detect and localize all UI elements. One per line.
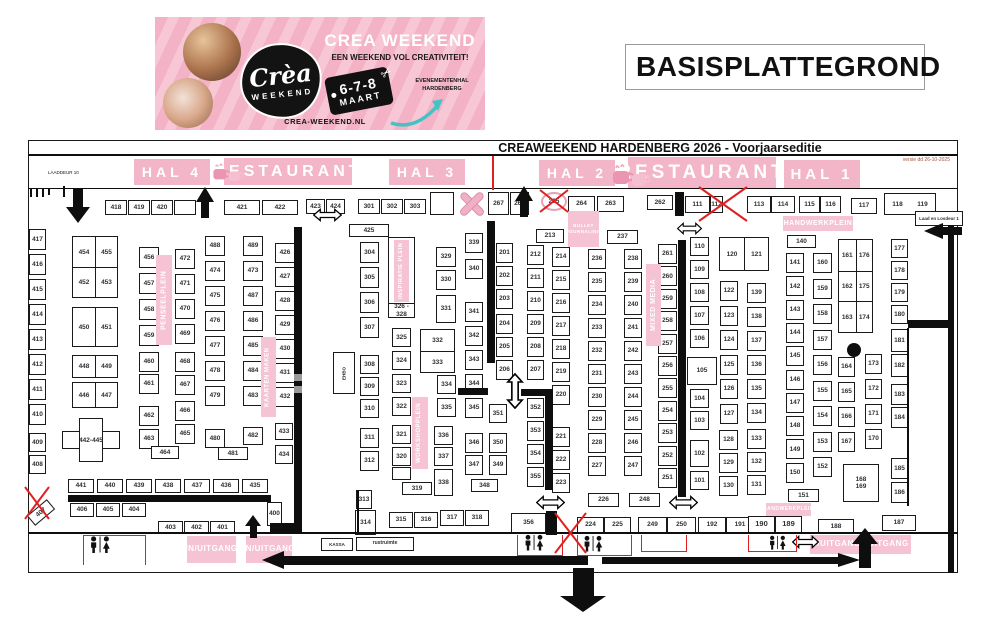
booth-149: 149 (786, 439, 804, 459)
booth-347: 347 (465, 455, 483, 475)
booth-451: 451 (95, 308, 117, 346)
booth-167: 167 (838, 432, 855, 452)
booth-205: 205 (496, 337, 513, 357)
booth-108: 108 (690, 283, 709, 302)
booth-475: 475 (205, 286, 225, 306)
booth-208: 208 (527, 337, 544, 357)
booth-338: 338 (434, 469, 453, 496)
hall-banner-restaurant: RESTAURANT (224, 158, 352, 185)
booth-203: 203 (496, 289, 513, 309)
area-label-mixed-media: MIXED MEDIA (646, 264, 661, 346)
booth-210: 210 (527, 291, 544, 311)
booth-413: 413 (29, 329, 46, 350)
hall-banner-hal-3: HAL 3 (389, 159, 465, 185)
booth-131: 131 (747, 475, 766, 495)
wall (487, 221, 495, 363)
wall (458, 388, 488, 395)
flow-arrow-down (66, 189, 90, 223)
booth-339: 339 (465, 233, 483, 253)
booth-154: 154 (813, 406, 832, 426)
booth-110: 110 (690, 237, 709, 256)
booth-478: 478 (205, 361, 225, 381)
booth-442-445: 442-445 (62, 418, 120, 462)
booth-321: 321 (392, 425, 411, 444)
booth-114: 114 (771, 196, 795, 213)
hall-banner-hal-4: HAL 4 (134, 159, 210, 185)
booth-102: 102 (690, 440, 709, 467)
wall (521, 389, 553, 396)
teal-arrow-icon (388, 95, 446, 127)
booth-164: 164 (838, 357, 855, 377)
booth-190: 190 (748, 516, 775, 533)
booth-482: 482 (243, 427, 263, 445)
coffee-cups-icon (610, 162, 650, 190)
booth-223: 223 (552, 473, 570, 493)
booth-322: 322 (392, 397, 411, 416)
booth-422: 422 (262, 200, 298, 215)
booth-489: 489 (243, 236, 263, 256)
booth-472: 472 (175, 249, 195, 269)
booth-142: 142 (786, 276, 804, 296)
booth-130: 130 (719, 476, 738, 496)
booth-241: 241 (624, 318, 642, 338)
booth-315: 315 (389, 512, 413, 528)
basisplattegrond-title-box: BASISPLATTEGROND (625, 44, 925, 90)
booth-150: 150 (786, 463, 804, 483)
booth-452: 452 (73, 267, 95, 297)
wall (294, 374, 302, 381)
booth-267: 267 (488, 192, 509, 215)
booth-185: 185 (891, 458, 908, 479)
booth-323: 323 (392, 374, 411, 393)
booth-175: 175 (856, 271, 873, 302)
basisplattegrond-page: Crèa WEEKEND CREA WEEKEND EEN WEEKEND VO… (0, 0, 988, 630)
wall (545, 396, 553, 490)
booth-121: 121 (744, 238, 768, 270)
entrance-marking (577, 535, 632, 556)
booth-231: 231 (588, 364, 606, 384)
booth-307: 307 (360, 317, 379, 338)
booth-317: 317 (440, 510, 464, 526)
booth-209: 209 (527, 314, 544, 334)
booth-126: 126 (720, 379, 738, 399)
booth-233: 233 (588, 318, 606, 338)
booth-468: 468 (175, 352, 195, 372)
booth-207: 207 (527, 360, 544, 380)
booth-337: 337 (434, 447, 453, 466)
double-arrow-icon (536, 495, 565, 510)
booth-133: 133 (747, 429, 766, 449)
booth-235: 235 (588, 272, 606, 292)
booth-217: 217 (552, 316, 570, 336)
booth-120: 120 (720, 238, 744, 270)
booth-104: 104 (690, 389, 709, 408)
wall (678, 240, 686, 497)
booth-263: 263 (597, 196, 624, 212)
hall-banner-hal-1: HAL 1 (784, 160, 860, 189)
booth-421: 421 (224, 200, 260, 215)
booth-249: 249 (638, 517, 667, 533)
flow-arrow-down (560, 568, 607, 612)
booth-405: 405 (96, 503, 120, 517)
double-arrow-icon (669, 495, 698, 510)
closed-booth-x (455, 192, 486, 215)
booth-480: 480 (205, 429, 225, 448)
booth-485: 485 (243, 336, 263, 356)
booth-125: 125 (720, 355, 738, 375)
booth-342: 342 (465, 326, 483, 346)
area-label-bullet: BULLET JOURNALING (568, 211, 599, 247)
booth-346: 346 (465, 433, 483, 453)
booth-220: 220 (552, 385, 570, 405)
booth-487: 487 (243, 286, 263, 306)
booth-block: 332333 (420, 329, 455, 373)
area-label-in-uitgang: IN/UITGANG (187, 536, 236, 563)
booth-134: 134 (747, 403, 766, 423)
booth-127: 127 (720, 404, 738, 424)
booth (430, 192, 454, 215)
booth-123: 123 (720, 306, 738, 326)
booth-222: 222 (552, 450, 570, 470)
area-label-penseelplein: PENSEELPLEIN (156, 255, 172, 345)
booth-214: 214 (552, 247, 570, 267)
booth-436: 436 (213, 479, 239, 493)
red-x-mark (24, 486, 50, 520)
booth-244: 244 (624, 387, 642, 407)
booth-251: 251 (658, 468, 677, 488)
booth-140: 140 (787, 235, 816, 248)
booth-EHBO: EHBO (333, 352, 355, 394)
booth-447: 447 (95, 383, 117, 407)
booth-416: 416 (29, 254, 46, 275)
booth-466: 466 (175, 401, 195, 421)
booth-350: 350 (489, 433, 507, 453)
area-label-handwerkplein: HANDWERKPLEIN (766, 503, 811, 516)
wall (948, 225, 954, 573)
booth-148: 148 (786, 416, 804, 436)
tag-hole (331, 92, 337, 98)
booth-186: 186 (891, 482, 908, 503)
booth-137: 137 (747, 331, 766, 351)
flow-arrow-up (245, 515, 262, 538)
booth-306: 306 (360, 292, 379, 313)
booth-237: 237 (607, 230, 638, 244)
booth-464: 464 (151, 446, 179, 459)
booth-341: 341 (465, 302, 483, 322)
wall (907, 328, 909, 506)
wall (357, 490, 359, 534)
booth-319: 319 (402, 482, 432, 495)
booth-427: 427 (275, 267, 295, 287)
booth-336: 336 (434, 426, 453, 445)
booth-213: 213 (536, 229, 564, 243)
booth-356: 356 (511, 513, 546, 533)
booth-439: 439 (126, 479, 152, 493)
booth-189: 189 (775, 516, 802, 533)
booth-454: 454 (73, 237, 95, 267)
booth-435: 435 (242, 479, 268, 493)
booth-303: 303 (404, 199, 426, 214)
booth-118: 118 (885, 194, 910, 214)
booth-168-169: 168 169 (843, 464, 879, 502)
booth-136: 136 (747, 355, 766, 375)
booth-163: 163 (839, 301, 856, 332)
flow-arrow-right (602, 553, 860, 568)
booth-218: 218 (552, 339, 570, 359)
booth-227: 227 (588, 456, 606, 476)
booth-437: 437 (184, 479, 210, 493)
wall (36, 188, 38, 197)
booth-309: 309 (360, 377, 379, 396)
booth-141: 141 (786, 253, 804, 273)
booth-rustruimte: rustruimte (356, 537, 414, 551)
booth-192: 192 (698, 517, 726, 533)
booth-411: 411 (29, 379, 46, 400)
booth-117: 117 (851, 198, 877, 214)
booth-113: 113 (747, 196, 771, 213)
booth-158: 158 (813, 304, 832, 324)
booth-324: 324 (392, 351, 411, 370)
booth-301: 301 (358, 199, 380, 214)
booth-455: 455 (95, 237, 117, 267)
wall (63, 186, 65, 197)
booth-310: 310 (360, 399, 379, 418)
entrance-marking (83, 535, 146, 565)
double-arrow-icon (313, 208, 342, 222)
booth-147: 147 (786, 393, 804, 413)
flow-arrow-up (515, 186, 533, 217)
booth-225: 225 (604, 517, 631, 533)
booth-479: 479 (205, 386, 225, 406)
booth-410: 410 (29, 404, 46, 425)
booth-107: 107 (690, 306, 709, 325)
booth-184: 184 (891, 407, 908, 428)
booth-434: 434 (275, 445, 293, 464)
booth-116: 116 (820, 196, 841, 213)
booth-406: 406 (70, 503, 94, 517)
booth-211: 211 (527, 268, 544, 288)
booth-122: 122 (720, 281, 738, 301)
booth-473: 473 (243, 261, 263, 281)
booth-469: 469 (175, 324, 195, 344)
booth-348: 348 (471, 479, 498, 492)
booth-145: 145 (786, 346, 804, 366)
red-x-mark (539, 189, 569, 213)
booth-block: 446447 (72, 382, 118, 408)
booth-135: 135 (747, 379, 766, 399)
booth-124: 124 (720, 330, 738, 350)
booth-226: 226 (588, 493, 619, 507)
booth-176: 176 (856, 240, 873, 271)
red-line (492, 156, 494, 190)
booth-115: 115 (799, 196, 820, 213)
booth-152: 152 (813, 457, 832, 477)
booth-248: 248 (629, 493, 660, 507)
booth-146: 146 (786, 370, 804, 390)
booth-438: 438 (155, 479, 181, 493)
wall (68, 495, 271, 502)
booth-477: 477 (205, 336, 225, 356)
booth-449: 449 (95, 356, 117, 377)
booth-431: 431 (275, 363, 295, 383)
booth-173: 173 (865, 354, 882, 374)
booth-428: 428 (275, 291, 295, 311)
booth-238: 238 (624, 249, 642, 269)
entrance-marking (748, 535, 797, 552)
booth-254: 254 (658, 401, 677, 421)
booth-305: 305 (360, 267, 379, 288)
booth-block: 120121 (719, 237, 769, 271)
booth-345: 345 (465, 398, 483, 418)
banner-photo-2 (163, 78, 213, 128)
booth-228: 228 (588, 433, 606, 453)
booth-329: 329 (436, 247, 456, 267)
booth-404: 404 (122, 503, 146, 517)
booth-247: 247 (624, 456, 642, 476)
booth-261: 261 (658, 244, 677, 264)
booth-221: 221 (552, 427, 570, 447)
booth-201: 201 (496, 243, 513, 263)
booth-182: 182 (891, 354, 908, 377)
booth-230: 230 (588, 387, 606, 407)
booth-159: 159 (813, 279, 832, 299)
booth-334: 334 (437, 375, 456, 394)
booth-429: 429 (275, 315, 295, 335)
booth-183: 183 (891, 384, 908, 405)
booth-103: 103 (690, 411, 709, 430)
booth-481: 481 (218, 447, 248, 460)
booth-144: 144 (786, 323, 804, 343)
wall (48, 188, 50, 195)
booth-316: 316 (414, 512, 438, 528)
booth-161: 161 (839, 240, 856, 271)
booth-block: 161176162175163174 (838, 239, 873, 333)
wall (30, 188, 32, 197)
booth-KASSA: KASSA (321, 538, 353, 551)
booth-101: 101 (690, 471, 709, 490)
booth-486: 486 (243, 311, 263, 331)
booth-476: 476 (205, 311, 225, 331)
booth-352: 352 (527, 398, 544, 418)
booth-453: 453 (95, 267, 117, 297)
booth-246: 246 (624, 433, 642, 453)
booth-245: 245 (624, 410, 642, 430)
booth-170: 170 (865, 429, 882, 449)
area-label-workshopplein: WORKSHOPPLEIN (412, 397, 428, 469)
booth-234: 234 (588, 295, 606, 315)
booth-412: 412 (29, 354, 46, 375)
booth-239: 239 (624, 272, 642, 292)
booth-441: 441 (68, 479, 94, 493)
pillar-dot (847, 343, 861, 357)
booth-219: 219 (552, 362, 570, 382)
booth (392, 467, 411, 480)
booth-460: 460 (139, 352, 159, 372)
booth-181: 181 (891, 329, 908, 352)
booth-236: 236 (588, 249, 606, 269)
booth-331: 331 (436, 295, 456, 323)
booth-304: 304 (360, 242, 379, 263)
wall (28, 532, 958, 534)
booth-409: 409 (29, 433, 46, 452)
booth-232: 232 (588, 341, 606, 361)
booth-318: 318 (465, 510, 489, 526)
booth-470: 470 (175, 299, 195, 319)
wall (42, 188, 44, 197)
booth-109: 109 (690, 260, 709, 279)
booth-216: 216 (552, 293, 570, 313)
booth (174, 200, 196, 215)
booth-179: 179 (891, 283, 908, 302)
booth-326---328: 326 - 328 (388, 303, 415, 318)
booth-264: 264 (568, 196, 595, 212)
hall-banner-hal-2: HAL 2 (539, 160, 615, 186)
crea-weekend-logo: Crèa WEEKEND (236, 39, 325, 123)
booth-187: 187 (882, 515, 916, 531)
booth-484: 484 (243, 361, 263, 381)
booth-178: 178 (891, 261, 908, 280)
booth-340: 340 (465, 259, 483, 279)
booth-467: 467 (175, 375, 195, 395)
booth-450: 450 (73, 308, 95, 346)
booth-426: 426 (275, 243, 295, 263)
booth-139: 139 (747, 283, 766, 303)
booth-180: 180 (891, 305, 908, 324)
booth-465: 465 (175, 424, 195, 444)
plan-text: CREAWEEKEND HARDENBERG 2026 - Voorjaarse… (400, 141, 920, 155)
booth-155: 155 (813, 381, 832, 401)
booth-333: 333 (421, 351, 454, 372)
booth-302: 302 (381, 199, 403, 214)
wall (675, 192, 684, 216)
booth-430: 430 (275, 339, 295, 359)
booth-106: 106 (690, 329, 709, 348)
booth-440: 440 (97, 479, 123, 493)
booth-block: 454455452453 (72, 236, 118, 298)
booth-330: 330 (436, 270, 456, 290)
booth-255: 255 (658, 378, 677, 398)
booth-325: 325 (392, 328, 411, 347)
flow-arrow-left (924, 223, 962, 239)
booth-353: 353 (527, 421, 544, 441)
booth-483: 483 (243, 386, 263, 406)
booth-240: 240 (624, 295, 642, 315)
booth-129: 129 (719, 453, 738, 473)
area-label-inspiratie-plein: INSPIRATIE PLEIN (394, 240, 409, 302)
red-x-mark (698, 186, 748, 222)
booth-157: 157 (813, 330, 832, 350)
booth-174: 174 (856, 301, 873, 332)
booth-488: 488 (205, 236, 225, 256)
booth-461: 461 (139, 374, 159, 394)
booth-419: 419 (128, 200, 150, 215)
hall-banner-restaurant: RESTAURANT (628, 157, 776, 189)
booth-262: 262 (647, 195, 673, 210)
area-label-handwerkplein: HANDWERKPLEIN (783, 216, 853, 231)
booth-308: 308 (360, 355, 379, 374)
banner-title: CREA WEEKEND (322, 31, 478, 51)
booth-202: 202 (496, 266, 513, 286)
banner-venue: EVENEMENTENHAL HARDENBERG (402, 77, 482, 94)
booth-172: 172 (865, 379, 882, 399)
area-label-kaarten-maken: KAARTEN MAKEN (261, 337, 276, 417)
booth-417: 417 (29, 229, 46, 250)
booth-212: 212 (527, 245, 544, 265)
booth-204: 204 (496, 314, 513, 334)
booth-335: 335 (437, 398, 456, 417)
booth-312: 312 (360, 451, 379, 471)
booth-446: 446 (73, 383, 95, 407)
